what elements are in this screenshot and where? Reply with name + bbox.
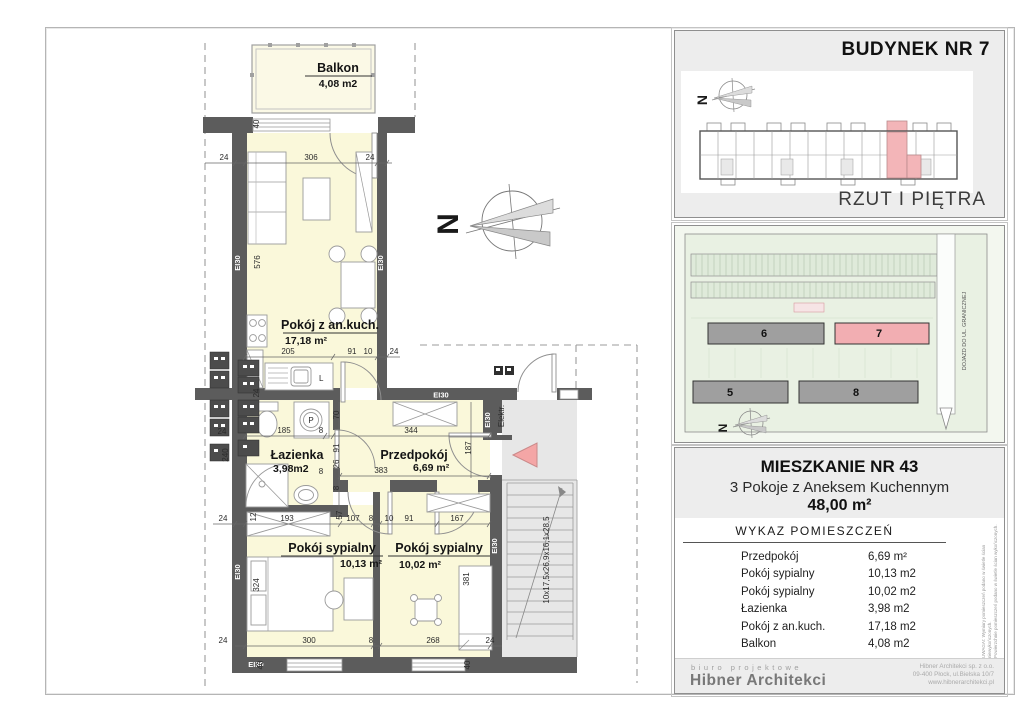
svg-text:Łazienka: Łazienka: [271, 448, 325, 462]
apartment-title: MIESZKANIE NR 43: [675, 457, 1004, 477]
svg-text:24: 24: [219, 636, 228, 645]
svg-text:24: 24: [390, 347, 399, 356]
room-area: 10,02 m2: [868, 586, 971, 598]
site-plan-svg: 6 7 5 8 DOJAZD DO UL. GRANICZNEJ N: [675, 226, 1004, 442]
svg-text:EI30: EI30: [483, 412, 492, 427]
room-area: 10,13 m2: [868, 568, 971, 580]
room-list-title: WYKAZ POMIESZCZEŃ: [683, 524, 946, 543]
room-area: 3,98 m2: [868, 603, 971, 615]
room-list-table: Przedpokój 6,69 m² Pokój sypialny 10,13 …: [741, 548, 971, 653]
svg-text:EI30: EI30: [490, 538, 499, 553]
svg-text:26: 26: [332, 459, 341, 468]
svg-text:381: 381: [462, 572, 471, 586]
apartment-header: MIESZKANIE NR 43 3 Pokoje z Aneksem Kuch…: [675, 448, 1004, 518]
sink-L-label: L: [319, 374, 324, 383]
svg-text:EI30: EI30: [376, 255, 385, 270]
svg-text:40: 40: [463, 660, 472, 669]
svg-text:300: 300: [302, 636, 316, 645]
mini-compass: N: [694, 78, 755, 112]
room-name: Pokój sypialny: [741, 586, 868, 598]
svg-text:8: 8: [319, 426, 324, 435]
svg-text:Pokój z an.kuch.: Pokój z an.kuch.: [281, 318, 379, 332]
svg-text:24: 24: [219, 514, 228, 523]
svg-text:40: 40: [252, 119, 261, 128]
svg-text:167: 167: [450, 514, 464, 523]
svg-text:8: 8: [319, 467, 324, 476]
svg-text:187: 187: [464, 441, 473, 455]
building-outline-svg: N: [681, 71, 973, 193]
corridor-area: [502, 400, 577, 657]
room-area: 17,18 m2: [868, 621, 971, 633]
svg-text:324: 324: [252, 578, 261, 592]
floor-caption: RZUT I PIĘTRA: [838, 189, 986, 211]
balcony: Balkon 4,08 m2: [250, 43, 375, 113]
svg-text:5: 5: [727, 387, 733, 399]
svg-text:7: 7: [876, 328, 882, 340]
svg-text:10,13 m²: 10,13 m²: [340, 558, 383, 570]
svg-text:91: 91: [332, 443, 341, 452]
svg-text:6: 6: [761, 328, 767, 340]
svg-text:N: N: [716, 424, 730, 433]
stair-dimensions-note: 10x17,5x26,9x16,1x28,5: [542, 516, 551, 604]
north-letter: N: [432, 213, 465, 235]
svg-text:EI30: EI30: [433, 391, 448, 400]
svg-text:193: 193: [280, 514, 294, 523]
svg-text:91: 91: [405, 514, 414, 523]
electrical-panels: [494, 366, 514, 375]
apartment-info-panel: MIESZKANIE NR 43 3 Pokoje z Aneksem Kuch…: [674, 447, 1005, 694]
svg-text:91: 91: [348, 347, 357, 356]
svg-text:40: 40: [256, 660, 265, 669]
highlighted-unit: [887, 132, 907, 178]
svg-text:24: 24: [486, 636, 495, 645]
svg-text:EI30: EI30: [233, 255, 242, 270]
svg-text:383: 383: [374, 466, 388, 475]
svg-text:10: 10: [364, 347, 373, 356]
measurement-disclaimer: UWAGA!: Wymiary pomieszczeń podano w świ…: [981, 523, 999, 658]
table-row: Pokój z an.kuch. 17,18 m2: [741, 618, 971, 636]
table-row: Balkon 4,08 m2: [741, 636, 971, 654]
svg-text:10,02 m²: 10,02 m²: [399, 559, 442, 571]
svg-text:Pokój sypialny: Pokój sypialny: [288, 541, 376, 555]
studio-name: Hibner Architekci: [690, 672, 826, 690]
room-area: 4,08 m2: [868, 638, 971, 650]
site-plan-panel: 6 7 5 8 DOJAZD DO UL. GRANICZNEJ N: [674, 225, 1005, 443]
room-name: Pokój sypialny: [741, 568, 868, 580]
room-name: Pokój z an.kuch.: [741, 621, 868, 633]
svg-text:70: 70: [332, 410, 341, 419]
studio-address: Hibner Architekci sp. z o.o. 09-400 Płoc…: [913, 663, 994, 687]
svg-text:24: 24: [366, 153, 375, 162]
svg-text:57: 57: [335, 510, 344, 519]
svg-text:205: 205: [281, 347, 295, 356]
svg-text:N: N: [694, 95, 710, 105]
svg-text:8: 8: [369, 636, 374, 645]
road-label: DOJAZD DO UL. GRANICZNEJ: [962, 291, 968, 370]
svg-text:107: 107: [346, 514, 360, 523]
svg-text:24: 24: [220, 153, 229, 162]
svg-text:24: 24: [252, 388, 261, 397]
svg-text:6,69 m²: 6,69 m²: [413, 462, 450, 474]
balcony-label: Balkon: [317, 61, 359, 75]
svg-text:8: 8: [332, 485, 341, 490]
svg-text:12: 12: [249, 512, 258, 521]
svg-text:576: 576: [253, 255, 262, 269]
room-area: 6,69 m²: [868, 551, 971, 563]
access-road: [937, 234, 955, 429]
table-row: Przedpokój 6,69 m²: [741, 548, 971, 566]
building-plan-canvas: N: [681, 71, 973, 193]
washer-P-label: P: [308, 416, 313, 425]
room-name: Balkon: [741, 638, 868, 650]
svg-text:3,98m2: 3,98m2: [273, 463, 309, 475]
building-title: BUDYNEK NR 7: [841, 39, 990, 61]
apartment-total-area: 48,00 m²: [675, 497, 1004, 515]
svg-text:17,18 m²: 17,18 m²: [285, 335, 328, 347]
table-row: Pokój sypialny 10,02 m2: [741, 583, 971, 601]
room-name: Łazienka: [741, 603, 868, 615]
elektr-closet-label: Elektr.: [497, 405, 506, 427]
title-block-footer: biuro projektowe Hibner Architekci Hibne…: [675, 658, 1004, 693]
svg-text:10: 10: [385, 514, 394, 523]
svg-text:344: 344: [404, 426, 418, 435]
building-outline: [700, 121, 957, 185]
room-name: Przedpokój: [741, 551, 868, 563]
svg-text:306: 306: [304, 153, 318, 162]
svg-text:EI30: EI30: [233, 564, 242, 579]
studio-tagline: biuro projektowe: [691, 663, 802, 672]
svg-text:185: 185: [277, 426, 291, 435]
apartment-subtitle: 3 Pokoje z Aneksem Kuchennym: [675, 479, 1004, 496]
balcony-area: 4,08 m2: [319, 78, 358, 90]
north-compass: N: [432, 184, 560, 259]
svg-text:Przedpokój: Przedpokój: [380, 448, 447, 462]
building-locator-panel: BUDYNEK NR 7 N: [674, 30, 1005, 218]
table-row: Pokój sypialny 10,13 m2: [741, 566, 971, 584]
svg-text:8: 8: [369, 514, 374, 523]
svg-text:240: 240: [221, 448, 230, 462]
svg-text:8: 8: [853, 387, 859, 399]
svg-text:Pokój sypialny: Pokój sypialny: [395, 541, 483, 555]
svg-text:24: 24: [218, 427, 227, 436]
drawing-sheet-page: Balkon 4,08 m2: [0, 0, 1024, 724]
table-row: Łazienka 3,98 m2: [741, 601, 971, 619]
svg-text:268: 268: [426, 636, 440, 645]
